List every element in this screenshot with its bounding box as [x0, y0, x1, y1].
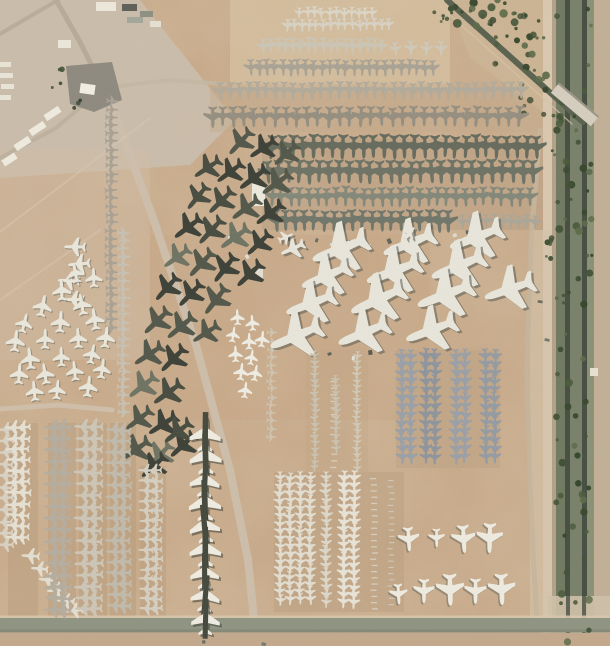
photo-grain: [0, 0, 610, 646]
aerial-photo-aircraft-boneyard: [0, 0, 610, 646]
satellite-image-stage: [0, 0, 610, 646]
